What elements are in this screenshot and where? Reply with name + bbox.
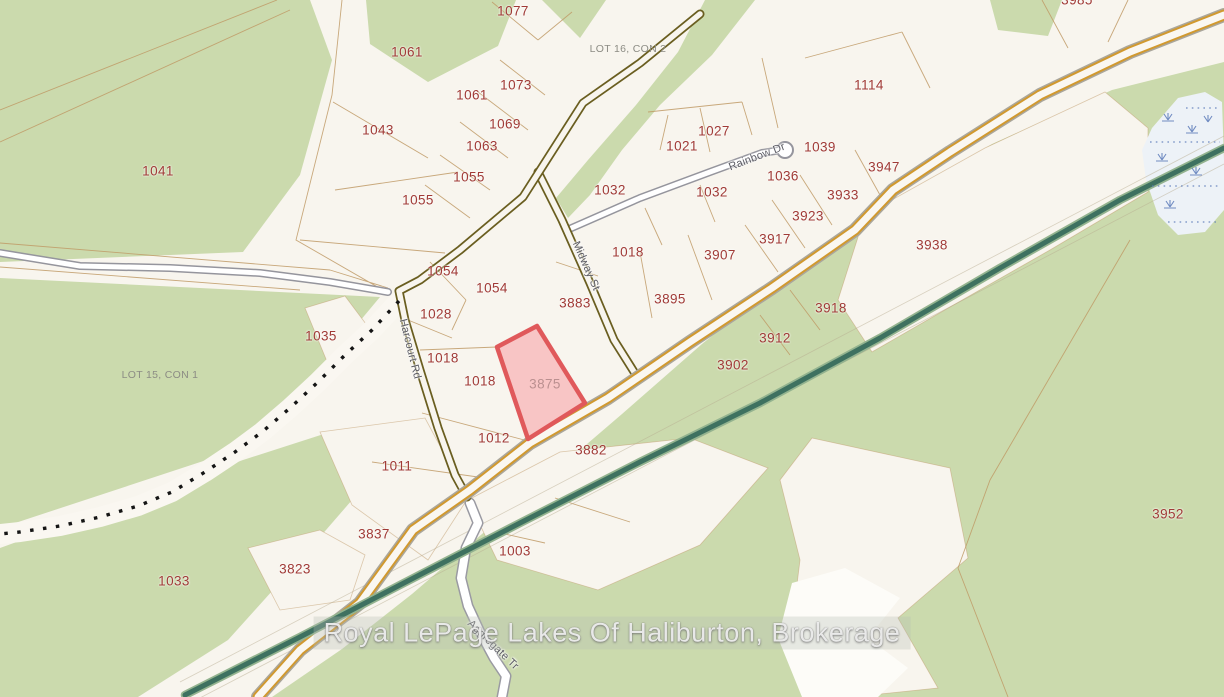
vegetation-areas (0, 0, 1224, 697)
map-canvas (0, 0, 1224, 697)
brokerage-watermark: Royal LePage Lakes Of Haliburton, Broker… (314, 617, 911, 650)
map[interactable]: 1077106110611073106910631043105510551041… (0, 0, 1224, 697)
